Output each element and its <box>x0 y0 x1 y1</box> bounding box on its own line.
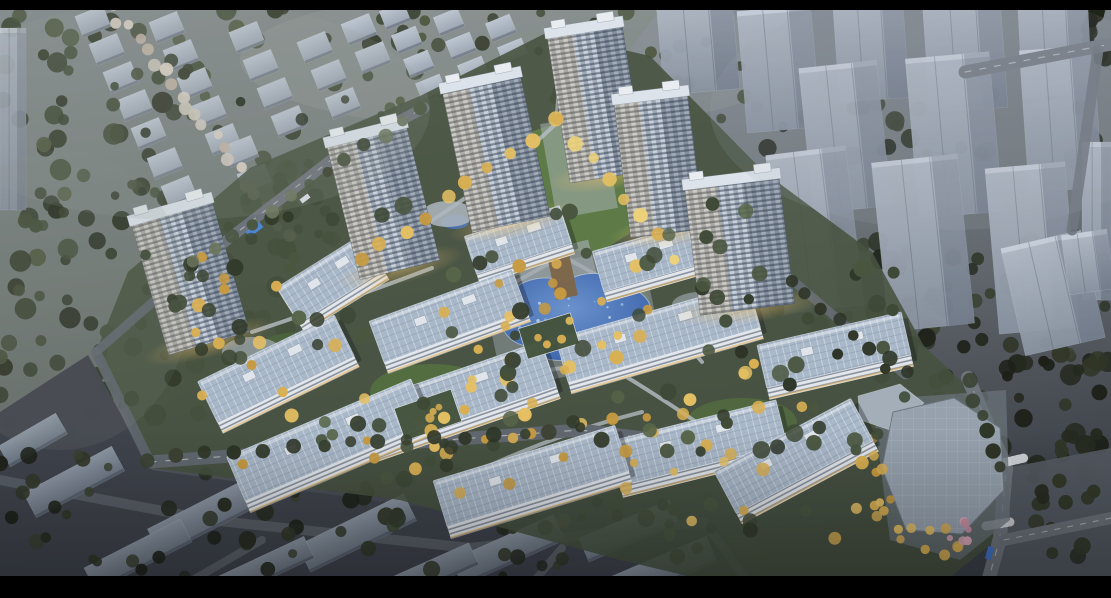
letterbox-top <box>0 0 1111 10</box>
screenshot-root: Aerial dusk rendering of a residential m… <box>0 0 1111 598</box>
aerial-rendering-svg <box>0 0 1111 598</box>
letterbox-bottom <box>0 576 1111 598</box>
